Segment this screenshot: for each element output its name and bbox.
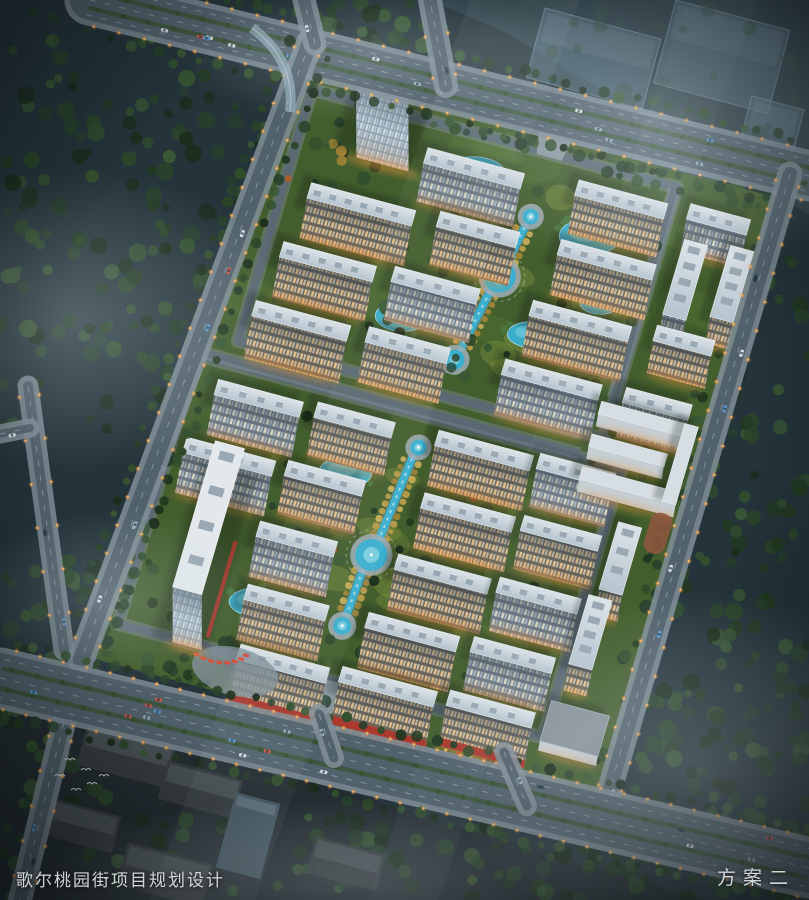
scheme-label: 方案二 <box>717 863 795 890</box>
vignette <box>0 0 809 900</box>
project-title: 歌尔桃园街项目规划设计 <box>16 866 225 891</box>
aerial-rendering-canvas: 歌尔桃园街项目规划设计 方案二 <box>0 0 809 900</box>
site-plan-rendering <box>0 0 809 900</box>
atmosphere-layer <box>0 0 809 900</box>
